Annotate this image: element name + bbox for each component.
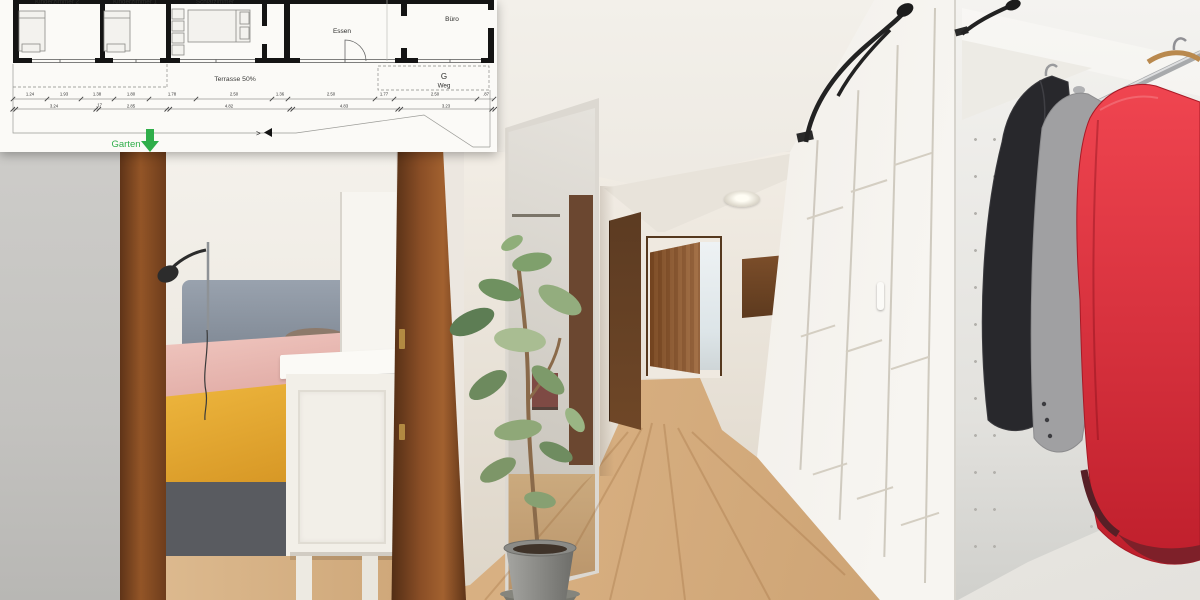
garden-label: Garten xyxy=(111,139,140,150)
dim-top: 2.50 xyxy=(230,92,239,97)
corridor-door-open xyxy=(650,242,700,374)
mirror-glass xyxy=(503,108,595,590)
floor-plan-drawing: Kinderzimmer 2 Kinderzimmer 1 Schlafzimm… xyxy=(0,0,497,152)
dim-top: 1.78 xyxy=(168,92,177,97)
dim-top: 1.93 xyxy=(60,92,69,97)
dim-top: 1.38 xyxy=(93,92,102,97)
terrace-label: Terrasse 50% xyxy=(214,76,256,83)
dim-bottom: 2.85 xyxy=(127,104,136,109)
dim-top: 1.80 xyxy=(127,92,136,97)
dim-bottom: 4.82 xyxy=(225,104,234,109)
door-frame-left xyxy=(120,152,166,600)
listing-photo-canvas: Kinderzimmer 2 Kinderzimmer 1 Schlafzimm… xyxy=(0,0,1200,600)
corridor-door-closed xyxy=(609,212,641,430)
floor-plan-inset: Kinderzimmer 2 Kinderzimmer 1 Schlafzimm… xyxy=(0,0,497,152)
dim-top: 2.50 xyxy=(327,92,336,97)
dim-top: 1.36 xyxy=(276,92,285,97)
dim-top: .87 xyxy=(483,92,490,97)
room-label-buero: Büro xyxy=(445,16,459,23)
dim-bottom: 4.83 xyxy=(340,104,349,109)
closet-peg-holes xyxy=(966,84,1006,564)
bedroom-view xyxy=(164,152,396,600)
dresser-leg xyxy=(362,556,378,600)
room-label-kinderzimmer1: Kinderzimmer 1 xyxy=(113,0,158,6)
dresser-leg xyxy=(296,556,312,600)
dim-bottom: 3.23 xyxy=(442,104,451,109)
mirror-reflection-floor xyxy=(503,474,595,590)
dim-top: 1.77 xyxy=(380,92,389,97)
wardrobe-handle xyxy=(877,282,884,310)
mirror-reflection-door xyxy=(569,195,593,465)
door-frame-right xyxy=(390,152,466,600)
dresser xyxy=(286,374,396,556)
path-label: Weg xyxy=(438,83,451,90)
section-marker: > xyxy=(256,129,261,138)
dim-bottom: 3.24 xyxy=(50,104,59,109)
ceiling-light xyxy=(724,191,760,207)
mirror-reflection-bench xyxy=(532,373,558,410)
dim-bottom: .17 xyxy=(96,103,103,108)
garage-label: G xyxy=(441,72,447,81)
dim-top: 1.24 xyxy=(26,92,35,97)
room-label-schlafzimmer: Schlafzimmer xyxy=(196,0,234,6)
dresser-panel xyxy=(298,390,386,544)
left-wall xyxy=(0,150,122,600)
dim-top: 2.50 xyxy=(431,92,440,97)
room-label-essen: Essen xyxy=(333,28,351,35)
mirror-reflection-coatrack xyxy=(512,214,560,217)
room-label-kinderzimmer2: Kinderzimmer 2 xyxy=(35,0,80,6)
leaning-mirror xyxy=(497,98,599,598)
